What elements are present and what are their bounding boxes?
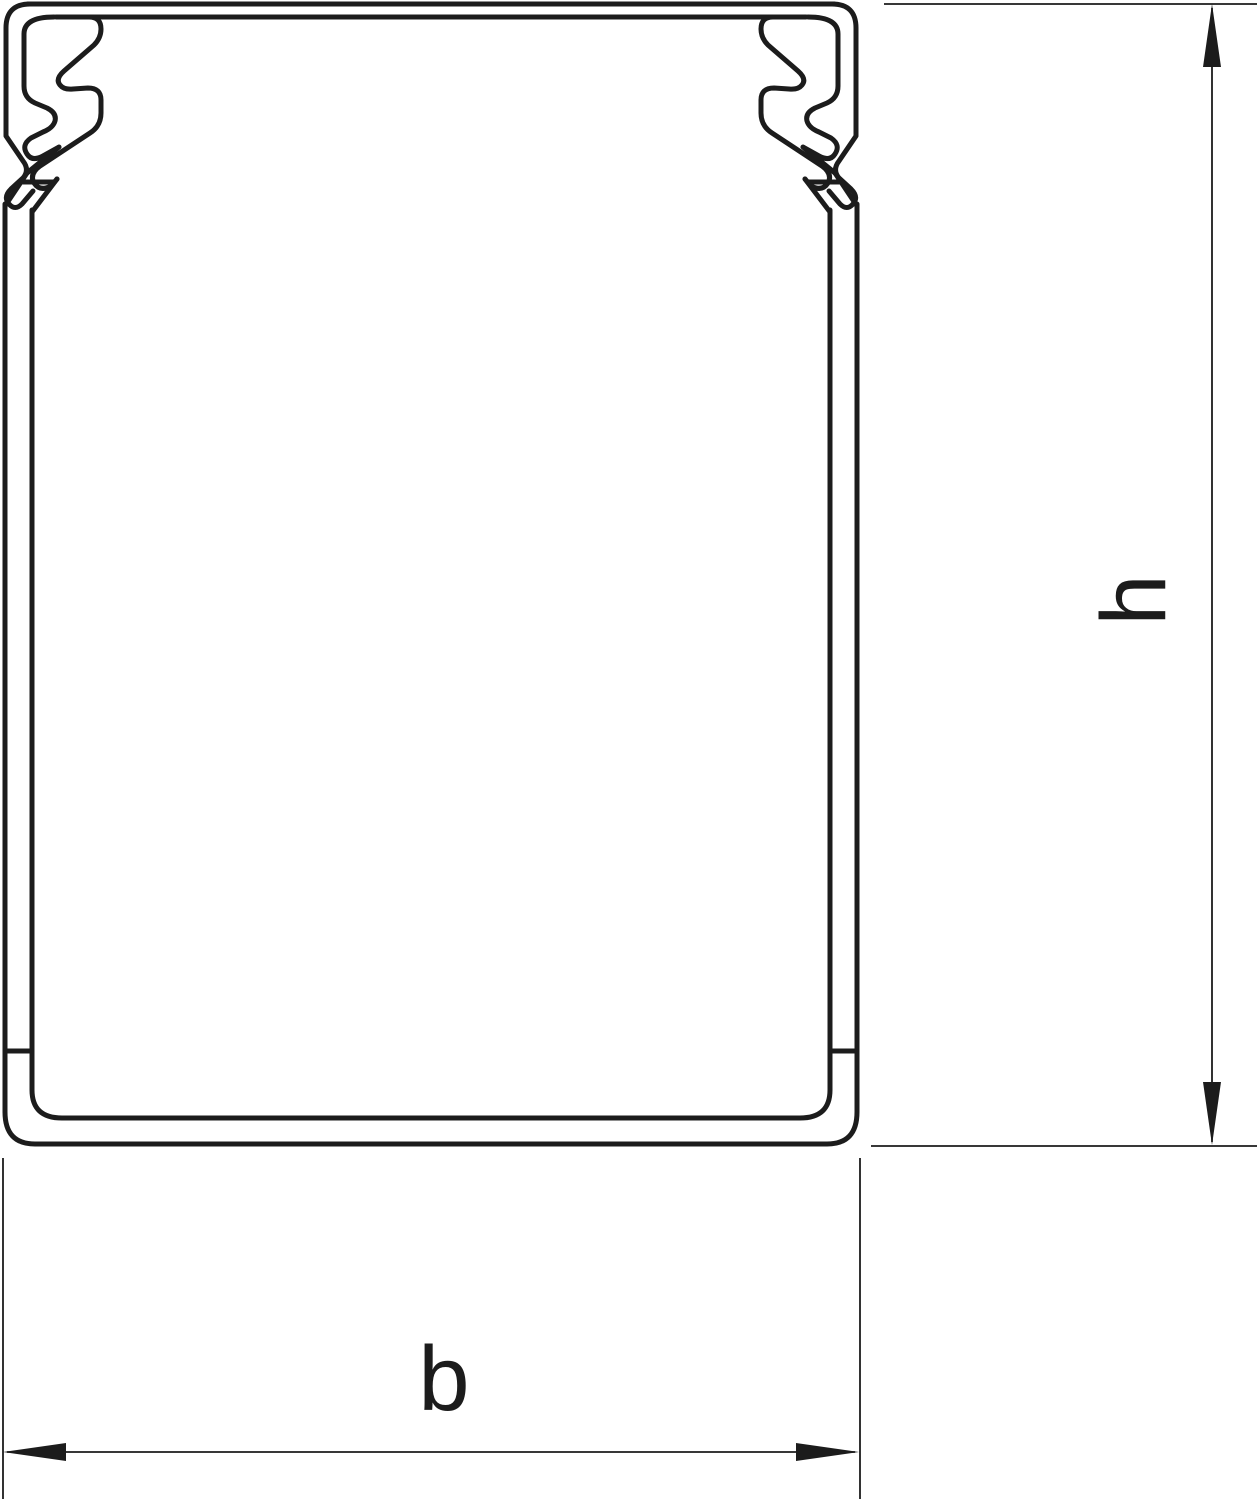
width-dimension: b [3,1158,860,1499]
arrow-left-icon [3,1443,66,1461]
arrow-up-icon [1203,4,1221,67]
technical-drawing-page: h b [0,0,1258,1500]
rim-outer-barb [6,4,33,208]
left-rim-clip [5,4,101,1051]
duct-cross-section-figure: h b [0,0,1258,1500]
duct-outline [5,4,857,1144]
right-rim-clip [761,4,857,1051]
rim-inner-groove [24,17,59,173]
height-dimension-label: h [1083,574,1185,625]
rim-clip-finger [32,17,101,188]
width-dimension-label: b [418,1328,469,1430]
inner-wall [32,210,830,1118]
height-dimension: h [871,4,1257,1146]
arrow-down-icon [1203,1082,1221,1145]
outer-wall [5,204,857,1144]
arrow-right-icon [796,1443,859,1461]
